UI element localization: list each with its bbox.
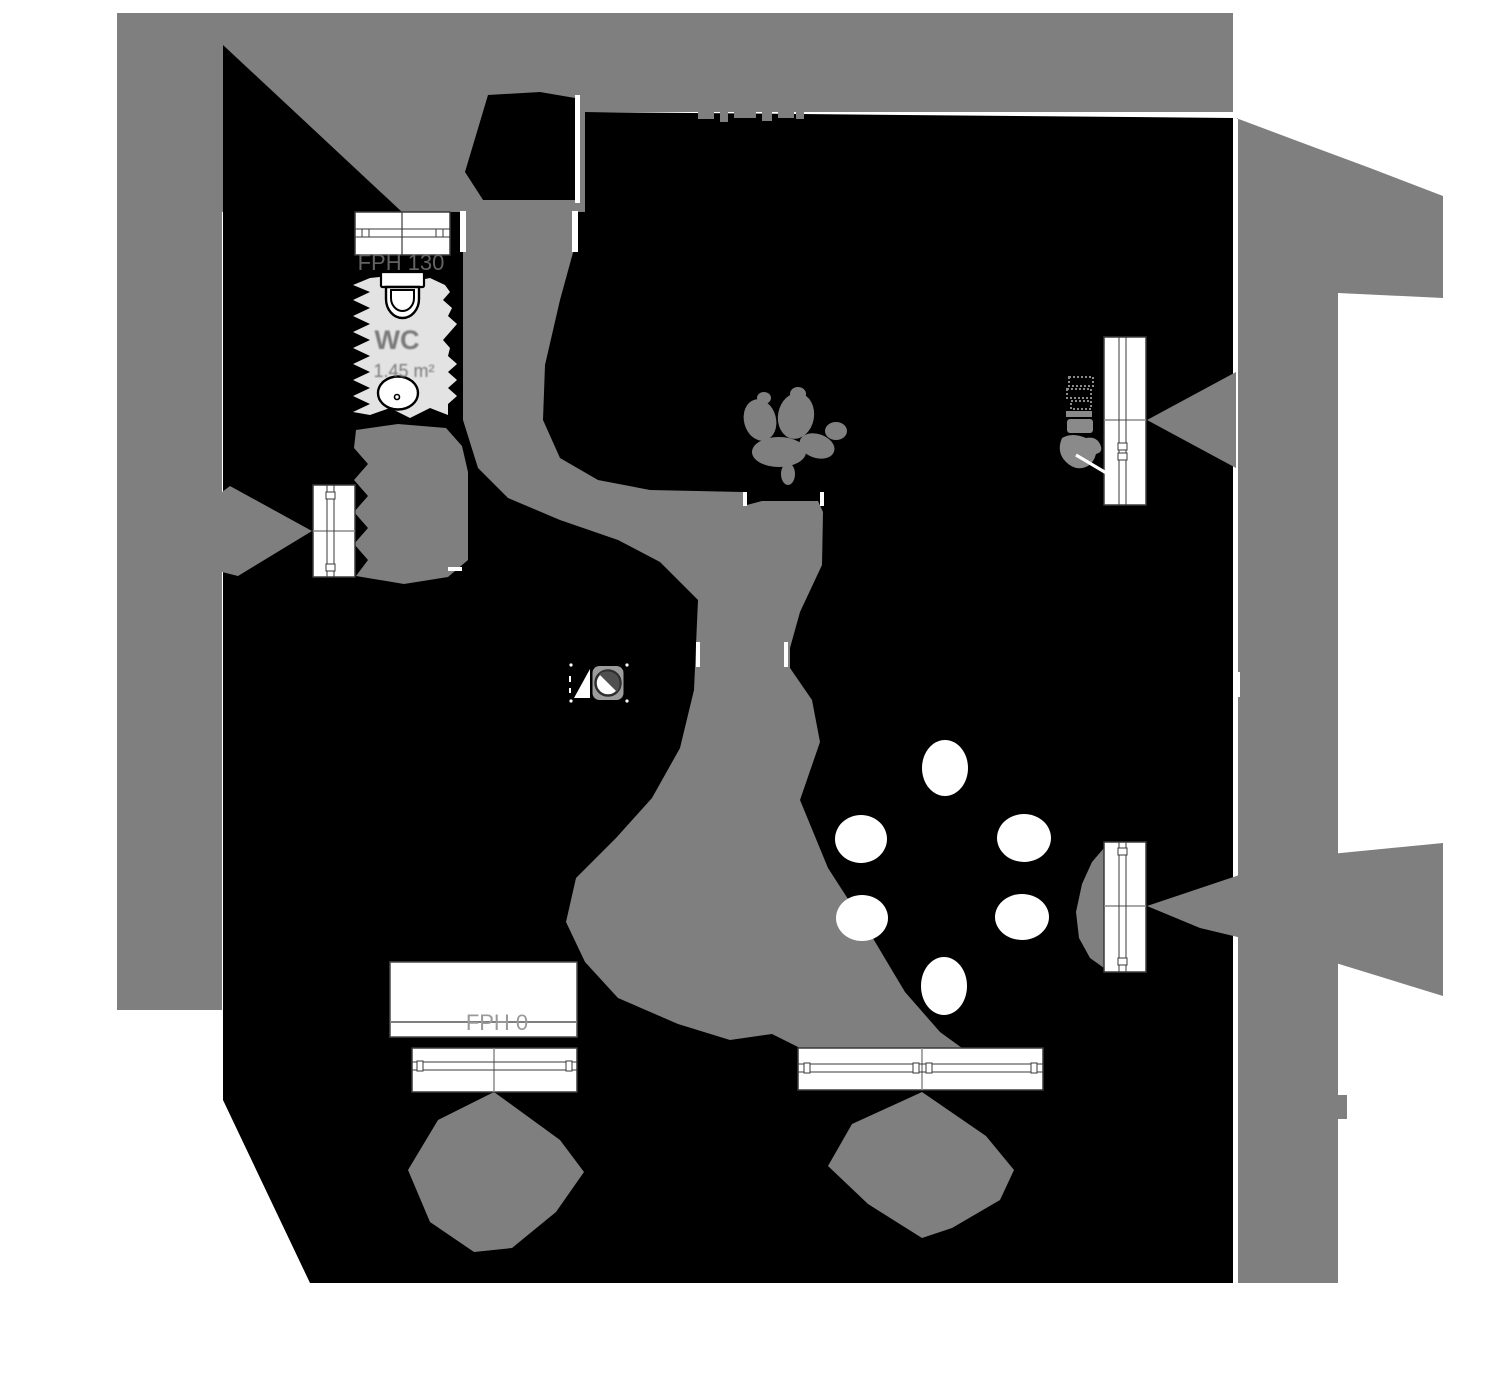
chair-lower-right (995, 894, 1049, 940)
floor-plan-drawing: FPH 0 (0, 0, 1500, 1373)
chair-upper-right (997, 814, 1051, 862)
label-wc-area: 1.45 m² (373, 361, 434, 381)
chair-lower-left (836, 895, 888, 941)
window-bottom-right (798, 1048, 1043, 1090)
chair-top (922, 740, 968, 796)
floor-plan-canvas: FPH 0 (0, 0, 1500, 1373)
sink-fixture (378, 377, 418, 410)
window-top-left (355, 212, 450, 255)
door-panel-bottom-left: FPH 0 (390, 962, 577, 1037)
window-bottom-left (412, 1048, 577, 1092)
window-right-top (1104, 337, 1146, 505)
gray-below-wc (354, 424, 468, 584)
label-wc: WC (375, 325, 420, 355)
label-fph-130: FPH 130 (358, 250, 445, 275)
window-left (313, 485, 355, 577)
label-fph-0: FPH 0 (466, 1010, 528, 1035)
window-right-mid (1104, 842, 1146, 972)
chair-bottom (921, 957, 967, 1015)
chair-upper-left (835, 815, 887, 863)
